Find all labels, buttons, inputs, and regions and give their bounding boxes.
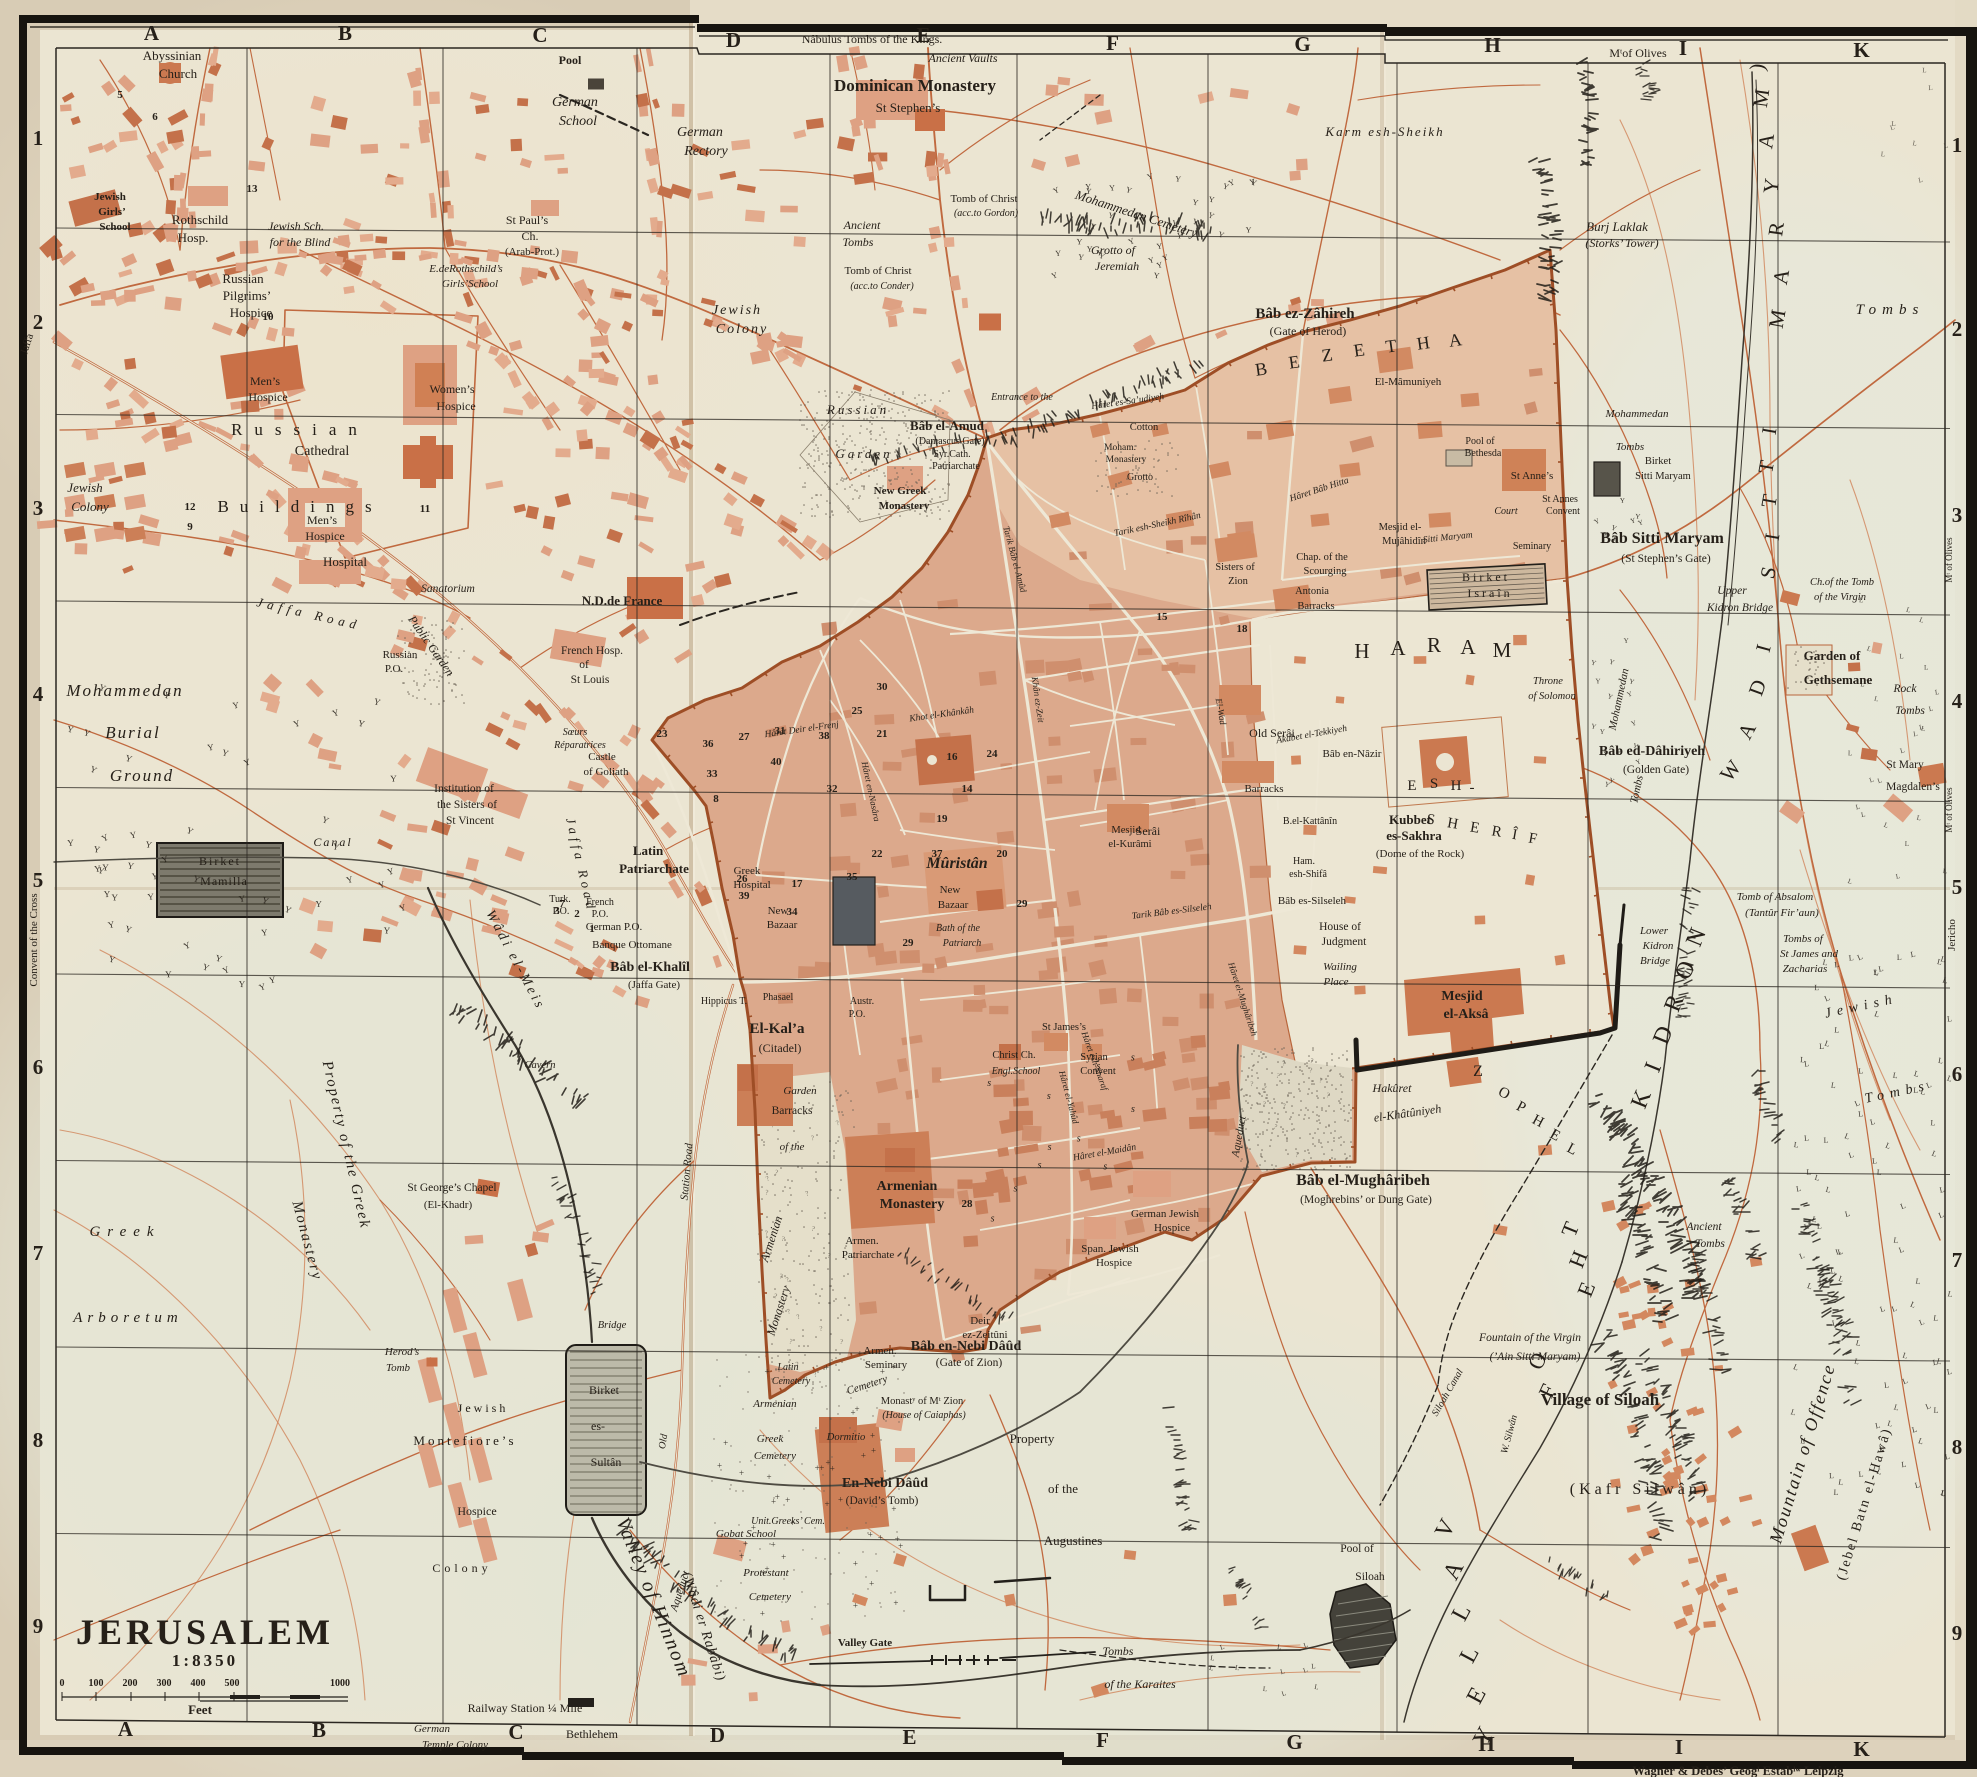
svg-text:Barracks: Barracks	[1244, 783, 1283, 795]
svg-text:Convent of the Cross: Convent of the Cross	[28, 893, 40, 986]
svg-text:18: 18	[1237, 623, 1249, 635]
svg-text:Chap. of the: Chap. of the	[1296, 552, 1348, 563]
svg-text:5: 5	[117, 89, 123, 101]
svg-text:Sanatorium: Sanatorium	[421, 583, 475, 595]
svg-text:House of: House of	[1319, 921, 1361, 933]
svg-text:Cemetery: Cemetery	[772, 1376, 811, 1387]
svg-text:Convent: Convent	[1546, 506, 1580, 517]
svg-text:Monastery: Monastery	[1106, 455, 1147, 465]
svg-text:25: 25	[852, 705, 864, 717]
svg-text:Feet: Feet	[188, 1702, 212, 1717]
svg-text:Sœurs: Sœurs	[563, 727, 588, 738]
svg-text:+: +	[878, 1532, 883, 1542]
svg-text:22: 22	[872, 848, 884, 860]
svg-text:School: School	[559, 114, 597, 129]
svg-text:Austr.: Austr.	[850, 996, 874, 1007]
svg-text:es-: es-	[591, 1419, 605, 1433]
svg-text:of: of	[579, 659, 589, 671]
svg-text:Ancient: Ancient	[843, 218, 881, 232]
svg-text:L: L	[1880, 150, 1885, 158]
svg-text:+: +	[870, 1431, 875, 1441]
svg-text:Banque Ottomane: Banque Ottomane	[592, 939, 672, 951]
svg-text:s: s	[1131, 1053, 1135, 1064]
svg-text:Russian: Russian	[231, 420, 369, 439]
svg-text:Phasael: Phasael	[763, 992, 794, 1003]
svg-text:es-Sakhra: es-Sakhra	[1386, 828, 1442, 843]
svg-text:G: G	[1294, 32, 1310, 56]
svg-text:Magdalen’s: Magdalen’s	[1886, 781, 1940, 793]
svg-text:Cotton: Cotton	[1130, 422, 1159, 433]
svg-text:(Dome of the Rock): (Dome of the Rock)	[1376, 848, 1465, 860]
svg-text:3: 3	[33, 496, 44, 520]
svg-text:Y: Y	[390, 774, 397, 784]
svg-text:Mᵗ of Olives: Mᵗ of Olives	[1944, 787, 1954, 833]
svg-text:Patriarchate: Patriarchate	[842, 1249, 895, 1261]
svg-text:Karm esh-Sheikh: Karm esh-Sheikh	[1324, 124, 1444, 139]
svg-text:St James and: St James and	[1780, 948, 1839, 960]
svg-text:Tomb of Absalom: Tomb of Absalom	[1737, 891, 1813, 903]
svg-text:Birket: Birket	[199, 854, 241, 868]
svg-text:Women’s: Women’s	[429, 382, 474, 396]
svg-text:Hippicus T.: Hippicus T.	[701, 996, 747, 1007]
svg-text:Tombs: Tombs	[1695, 1238, 1725, 1250]
svg-text:Monastʸ of Mᵗ Zion: Monastʸ of Mᵗ Zion	[881, 1396, 964, 1407]
svg-text:Siloah: Siloah	[1355, 1571, 1385, 1583]
svg-text:Y: Y	[111, 892, 118, 902]
svg-text:Tombs of: Tombs of	[1783, 933, 1825, 945]
svg-text:St Annes: St Annes	[1542, 494, 1578, 505]
svg-text:Unit.Greeks’ Cem.: Unit.Greeks’ Cem.	[751, 1516, 825, 1527]
svg-text:St Vincent: St Vincent	[446, 815, 495, 827]
svg-text:9: 9	[1952, 1621, 1963, 1645]
svg-text:Girls’School: Girls’School	[442, 278, 498, 290]
svg-text:(Golden Gate): (Golden Gate)	[1623, 764, 1689, 776]
svg-text:El-Kal’a: El-Kal’a	[750, 1021, 805, 1037]
svg-text:Mamilla: Mamilla	[200, 874, 248, 888]
svg-text:Armenian: Armenian	[752, 1398, 797, 1410]
svg-text:?: ?	[1250, 1080, 1254, 1088]
svg-text:Patriarchate: Patriarchate	[932, 461, 980, 472]
svg-text:s: s	[1048, 1142, 1052, 1153]
svg-text:Burial: Burial	[105, 723, 160, 742]
svg-text:14: 14	[962, 783, 974, 795]
svg-text:(David’s Tomb): (David’s Tomb)	[846, 1495, 919, 1507]
svg-text:(Damascus Gate): (Damascus Gate)	[915, 436, 984, 447]
svg-text:L: L	[1814, 983, 1819, 992]
svg-text:Latin: Latin	[633, 843, 664, 858]
svg-text:L: L	[1833, 1488, 1838, 1497]
svg-text:L: L	[1804, 1133, 1810, 1142]
svg-text:+: +	[739, 1551, 744, 1561]
svg-text:Seminary: Seminary	[865, 1359, 908, 1371]
svg-text:Place: Place	[1322, 976, 1348, 988]
svg-text:Jewish: Jewish	[94, 191, 126, 203]
svg-text:4: 4	[33, 682, 44, 706]
svg-text:39: 39	[739, 890, 751, 902]
svg-text:G: G	[1286, 1730, 1302, 1754]
svg-text:Girls’: Girls’	[98, 206, 126, 218]
svg-text:6: 6	[1952, 1062, 1963, 1086]
svg-text:Russian: Russian	[222, 271, 264, 286]
svg-text:New Greek: New Greek	[874, 485, 928, 497]
svg-text:Dominican Monastery: Dominican Monastery	[834, 76, 996, 95]
svg-text:1: 1	[589, 923, 595, 935]
svg-text:31: 31	[775, 725, 786, 737]
svg-text:Birket: Birket	[589, 1383, 620, 1397]
svg-text:Railway Station ¼ Mile: Railway Station ¼ Mile	[468, 1701, 583, 1715]
svg-text:Hospice: Hospice	[457, 1504, 496, 1518]
svg-text:Bethesda: Bethesda	[1465, 448, 1502, 459]
svg-text:Grotto: Grotto	[1127, 472, 1153, 483]
svg-text:Russian: Russian	[826, 402, 889, 417]
svg-text:E: E	[902, 1725, 916, 1749]
svg-text:4: 4	[1952, 689, 1963, 713]
svg-text:Gobat School: Gobat School	[716, 1528, 776, 1540]
svg-text:+: +	[771, 1540, 776, 1550]
svg-text:+: +	[893, 1598, 898, 1608]
svg-text:Court: Court	[1494, 506, 1518, 517]
svg-text:Y: Y	[1595, 677, 1600, 685]
svg-text:Pool of: Pool of	[1465, 436, 1495, 447]
svg-text:13: 13	[247, 183, 259, 195]
svg-text:D: D	[710, 1723, 725, 1747]
svg-text:500: 500	[225, 1678, 240, 1689]
svg-text:L: L	[1930, 1118, 1935, 1127]
svg-text:Moham.: Moham.	[1104, 443, 1136, 453]
svg-text:Colony: Colony	[71, 499, 109, 514]
svg-text:Property: Property	[1010, 1431, 1055, 1446]
svg-text:300: 300	[157, 1678, 172, 1689]
svg-text:Abyssinian: Abyssinian	[143, 48, 202, 63]
svg-text:Jericho: Jericho	[1946, 919, 1958, 951]
svg-text:Y: Y	[1246, 226, 1252, 235]
svg-text:(Kafr Silwân): (Kafr Silwân)	[1570, 1481, 1710, 1498]
svg-text:Rectory: Rectory	[683, 144, 728, 159]
svg-text:Cemetery: Cemetery	[754, 1450, 796, 1462]
svg-text:St Mary: St Mary	[1886, 759, 1924, 771]
svg-text:Sultân: Sultân	[591, 1455, 622, 1469]
svg-text:L: L	[1933, 1406, 1938, 1415]
svg-text:Patriarch: Patriarch	[942, 938, 982, 949]
svg-text:L: L	[1928, 84, 1933, 92]
svg-text:27: 27	[739, 731, 751, 743]
svg-text:L: L	[1897, 953, 1902, 962]
svg-text:Bath of the: Bath of the	[936, 923, 980, 934]
svg-text:Bâb es-Silseleh: Bâb es-Silseleh	[1278, 895, 1347, 907]
svg-text:Mohammedan: Mohammedan	[1605, 408, 1669, 420]
svg-text:Bazaar: Bazaar	[938, 899, 969, 911]
svg-text:Mᵗ of Olives: Mᵗ of Olives	[1944, 537, 1954, 583]
svg-text:Garden of: Garden of	[1804, 648, 1861, 663]
svg-text:Old Serâi: Old Serâi	[1249, 726, 1295, 740]
svg-text:L: L	[1905, 840, 1909, 848]
svg-text:1: 1	[1952, 133, 1963, 157]
svg-text:Armen.: Armen.	[863, 1345, 897, 1357]
svg-text:8: 8	[33, 1428, 44, 1452]
svg-text:of the Karaites: of the Karaites	[1104, 1677, 1176, 1691]
svg-text:32: 32	[827, 783, 839, 795]
svg-text:(Gate of Herod): (Gate of Herod)	[1270, 324, 1347, 338]
svg-text:Y: Y	[1620, 497, 1625, 505]
svg-text:Zion: Zion	[1228, 576, 1249, 587]
svg-text:St Louis: St Louis	[571, 674, 610, 686]
svg-text:Christ Ch.: Christ Ch.	[992, 1050, 1035, 1061]
svg-text:Y: Y	[1055, 249, 1061, 258]
svg-text:38: 38	[819, 730, 831, 742]
svg-text:Z: Z	[1473, 1063, 1483, 1080]
svg-text:s: s	[987, 1078, 991, 1089]
svg-text:40: 40	[771, 756, 783, 768]
svg-text:Tomb of Christ: Tomb of Christ	[950, 193, 1017, 205]
svg-text:29: 29	[1017, 898, 1029, 910]
svg-text:Fountain of the Virgin: Fountain of the Virgin	[1478, 1332, 1581, 1344]
svg-text:+: +	[868, 1530, 873, 1540]
svg-text:H: H	[1415, 332, 1431, 354]
svg-text:Y: Y	[102, 862, 109, 872]
svg-text:20: 20	[997, 848, 1009, 860]
svg-text:+: +	[830, 1464, 835, 1474]
svg-text:+: +	[861, 1450, 866, 1460]
svg-text:School: School	[99, 221, 130, 233]
svg-text:for the Blind: for the Blind	[270, 235, 332, 249]
svg-text:+: +	[765, 1367, 770, 1377]
svg-text:Hospice: Hospice	[1154, 1222, 1190, 1234]
svg-text:B: B	[338, 21, 352, 45]
svg-text:St Paul’s: St Paul’s	[506, 213, 549, 227]
svg-text:Men’s: Men’s	[250, 374, 280, 388]
svg-text:of the: of the	[780, 1141, 805, 1153]
svg-text:A: A	[1390, 636, 1406, 660]
svg-text:19: 19	[937, 813, 949, 825]
svg-text:Hospice: Hospice	[305, 529, 344, 543]
svg-text:Bethlehem: Bethlehem	[566, 1727, 619, 1741]
svg-text:28: 28	[962, 1198, 974, 1210]
svg-text:St Anne’s: St Anne’s	[1511, 470, 1553, 482]
svg-text:esh-Shifâ: esh-Shifâ	[1289, 869, 1327, 880]
svg-text:Birket: Birket	[1462, 570, 1510, 584]
svg-text:Buildings: Buildings	[217, 497, 382, 516]
svg-text:French Hosp.: French Hosp.	[561, 645, 623, 657]
svg-text:(St Stephen’s Gate): (St Stephen’s Gate)	[1621, 553, 1711, 565]
svg-text:Mesjid el-: Mesjid el-	[1379, 522, 1422, 533]
svg-text:K: K	[1853, 1737, 1870, 1761]
svg-text:Engl.School: Engl.School	[991, 1066, 1041, 1077]
svg-text:Bâb en-Nâzir: Bâb en-Nâzir	[1323, 748, 1382, 760]
svg-text:(acc.to Conder): (acc.to Conder)	[850, 281, 914, 292]
svg-text:L: L	[1829, 1471, 1834, 1480]
svg-text:L: L	[1834, 1025, 1840, 1034]
svg-text:of the Virgin: of the Virgin	[1814, 592, 1866, 603]
svg-text:R: R	[1427, 633, 1441, 657]
svg-text:Syrian: Syrian	[1080, 1052, 1108, 1063]
svg-text:el-Kurâmi: el-Kurâmi	[1108, 839, 1151, 850]
svg-text:400: 400	[191, 1678, 206, 1689]
svg-text:I: I	[1675, 1735, 1683, 1759]
svg-text:L: L	[1823, 1136, 1828, 1145]
svg-text:10: 10	[263, 311, 275, 323]
svg-text:17: 17	[792, 878, 804, 890]
svg-text:7: 7	[33, 1241, 44, 1265]
svg-text:Barracks: Barracks	[1297, 601, 1334, 612]
svg-text:JERUSALEM: JERUSALEM	[76, 1612, 334, 1652]
svg-text:Mᵗof Olives: Mᵗof Olives	[1609, 46, 1667, 60]
svg-text:Bâb el-Mughâribeh: Bâb el-Mughâribeh	[1296, 1172, 1430, 1189]
svg-text:36: 36	[703, 738, 715, 750]
svg-text:Y: Y	[152, 871, 160, 881]
svg-text:Antonia: Antonia	[1295, 586, 1329, 597]
svg-text:s: s	[991, 1214, 995, 1225]
svg-text:L: L	[1924, 664, 1928, 672]
svg-text:23: 23	[657, 728, 669, 740]
svg-text:Garden: Garden	[783, 1085, 817, 1097]
svg-text:7: 7	[559, 898, 565, 910]
svg-text:+: +	[785, 1495, 790, 1505]
svg-text:of Goliath: of Goliath	[584, 766, 629, 778]
svg-text:Lower: Lower	[1639, 925, 1669, 937]
svg-text:K: K	[1853, 38, 1870, 62]
svg-text:L: L	[1876, 1168, 1882, 1177]
svg-text:Y: Y	[238, 979, 246, 989]
svg-text:Mesjid: Mesjid	[1441, 989, 1482, 1004]
svg-text:German: German	[414, 1723, 451, 1735]
svg-text:16: 16	[947, 751, 959, 763]
svg-text:Throne: Throne	[1533, 676, 1563, 687]
svg-text:A: A	[1447, 329, 1463, 351]
svg-text:E: E	[1407, 778, 1416, 794]
svg-text:s: s	[1103, 1161, 1107, 1172]
svg-text:N.D.de France: N.D.de France	[582, 593, 663, 608]
svg-text:2: 2	[574, 908, 580, 920]
svg-text:B.el-Kattânîn: B.el-Kattânîn	[1283, 816, 1337, 827]
svg-text:?: ?	[819, 1325, 823, 1333]
svg-text:1:8350: 1:8350	[172, 1651, 238, 1670]
svg-text:Greek: Greek	[757, 1433, 785, 1445]
svg-text:L: L	[1872, 1156, 1878, 1165]
svg-text:Bridge: Bridge	[1640, 955, 1670, 967]
svg-text:2: 2	[1952, 317, 1963, 341]
svg-text:+: +	[869, 1579, 874, 1589]
svg-text:Sisters of: Sisters of	[1215, 562, 1255, 573]
svg-text:Jewish: Jewish	[712, 303, 762, 318]
svg-text:Kidron Bridge: Kidron Bridge	[1706, 602, 1773, 614]
svg-text:Jewish Sch.: Jewish Sch.	[268, 219, 324, 233]
svg-text:Birket: Birket	[1645, 456, 1671, 467]
svg-text:El-Mâmuniyeh: El-Mâmuniyeh	[1375, 376, 1442, 388]
svg-text:21: 21	[877, 728, 888, 740]
svg-text:H: H	[1451, 778, 1462, 794]
svg-text:Pilgrims’: Pilgrims’	[223, 288, 271, 303]
svg-text:9: 9	[187, 521, 193, 533]
svg-text:H: H	[1484, 33, 1500, 57]
svg-text:Bridge: Bridge	[598, 1320, 627, 1331]
svg-text:1: 1	[33, 126, 44, 150]
svg-text:el-Aksâ: el-Aksâ	[1443, 1007, 1488, 1022]
svg-text:+: +	[743, 1539, 748, 1549]
svg-text:En-Nebi Dâûd: En-Nebi Dâûd	[842, 1476, 928, 1491]
svg-text:Zacharias: Zacharias	[1783, 963, 1828, 975]
svg-text:9: 9	[33, 1614, 44, 1638]
svg-text:Gethsemane: Gethsemane	[1804, 672, 1873, 687]
svg-text:Deir: Deir	[970, 1315, 990, 1327]
svg-text:6: 6	[33, 1055, 44, 1079]
svg-text:Colony: Colony	[716, 322, 768, 337]
svg-text:Israîn: Israîn	[1467, 586, 1512, 600]
svg-text:+: +	[871, 1445, 876, 1455]
svg-text:Cathedral: Cathedral	[295, 444, 350, 459]
svg-text:Augustines: Augustines	[1044, 1533, 1103, 1548]
svg-text:Montefiore’s: Montefiore’s	[413, 1433, 516, 1448]
svg-text:Temple Colony: Temple Colony	[422, 1739, 488, 1751]
svg-text:29: 29	[903, 937, 915, 949]
svg-text:L: L	[1311, 1662, 1316, 1670]
svg-text:+: +	[853, 1601, 858, 1611]
svg-text:P.O.: P.O.	[385, 663, 404, 675]
svg-text:?: ?	[1282, 1102, 1286, 1110]
svg-text:11: 11	[420, 503, 430, 515]
svg-text:German: German	[677, 125, 723, 140]
svg-text:M: M	[1493, 638, 1512, 662]
svg-text:+: +	[766, 1472, 771, 1482]
svg-text:(acc.to Gordon): (acc.to Gordon)	[954, 208, 1019, 219]
svg-text:+: +	[854, 1404, 859, 1414]
svg-text:Bâb Sitti Maryam: Bâb Sitti Maryam	[1600, 530, 1724, 547]
svg-text:(House of Caiaphas): (House of Caiaphas)	[882, 1410, 966, 1421]
svg-text:L: L	[1806, 1168, 1811, 1177]
svg-text:Y: Y	[383, 925, 391, 935]
svg-text:Tombs: Tombs	[1856, 302, 1925, 318]
svg-text:24: 24	[987, 748, 999, 760]
svg-text:L: L	[1819, 1042, 1824, 1051]
svg-text:Barracks: Barracks	[772, 1105, 813, 1117]
svg-text:(Jaffa Gate): (Jaffa Gate)	[628, 979, 680, 991]
svg-text:Pool: Pool	[559, 53, 582, 67]
svg-text:Pool of: Pool of	[1340, 1543, 1374, 1555]
svg-text:s: s	[1131, 1104, 1135, 1115]
svg-text:Jewish: Jewish	[458, 1401, 509, 1415]
svg-text:Mesjid: Mesjid	[1111, 825, 1141, 836]
svg-text:Bâb ez-Zâhireh: Bâb ez-Zâhireh	[1255, 306, 1355, 322]
svg-text:Y: Y	[104, 889, 111, 899]
svg-text:Y: Y	[315, 899, 322, 909]
svg-text:6: 6	[152, 111, 158, 123]
svg-text:L: L	[1262, 1685, 1267, 1693]
svg-text:Hosp.: Hosp.	[178, 230, 209, 245]
svg-text:Men’s: Men’s	[307, 513, 337, 527]
svg-text:Russian: Russian	[383, 649, 418, 661]
svg-text:St James’s: St James’s	[1042, 1022, 1086, 1033]
svg-text:Y: Y	[1599, 728, 1605, 736]
svg-text:+: +	[853, 1558, 858, 1568]
svg-text:+: +	[824, 1363, 829, 1373]
svg-text:2: 2	[33, 310, 44, 334]
svg-text:100: 100	[89, 1678, 104, 1689]
svg-text:B: B	[312, 1718, 326, 1742]
svg-text:8: 8	[713, 793, 719, 805]
svg-text:+: +	[723, 1438, 728, 1448]
svg-text:Ancient Vaults: Ancient Vaults	[928, 51, 998, 65]
svg-text:+: +	[898, 1541, 903, 1551]
svg-text:Span. Jewish: Span. Jewish	[1081, 1243, 1139, 1255]
svg-text:Institution of: Institution of	[434, 783, 494, 795]
svg-text:of the: of the	[1048, 1481, 1078, 1496]
svg-text:Y: Y	[1076, 237, 1082, 246]
svg-text:Tombs: Tombs	[1616, 441, 1644, 453]
svg-text:Y: Y	[1109, 183, 1116, 193]
svg-text:Jeremiah: Jeremiah	[1095, 259, 1139, 273]
svg-text:+: +	[825, 1499, 830, 1509]
svg-text:C: C	[508, 1720, 523, 1744]
svg-text:Syr.Cath.: Syr.Cath.	[933, 449, 970, 460]
